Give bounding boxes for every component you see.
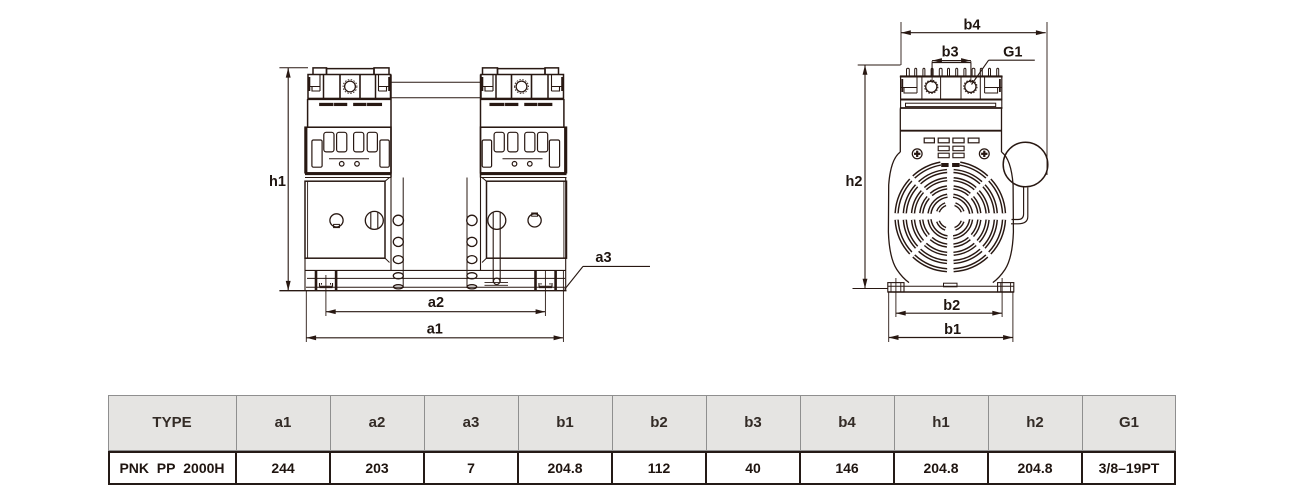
svg-text:b3: b3	[942, 45, 959, 61]
svg-text:h1: h1	[269, 174, 286, 190]
svg-text:G1: G1	[1003, 45, 1022, 61]
svg-text:h2: h2	[846, 174, 863, 190]
svg-text:a2: a2	[428, 295, 444, 311]
svg-text:b1: b1	[944, 322, 961, 338]
svg-text:b4: b4	[964, 18, 981, 34]
svg-text:b2: b2	[943, 298, 960, 314]
svg-text:a3: a3	[595, 250, 611, 266]
svg-text:a1: a1	[427, 322, 443, 338]
